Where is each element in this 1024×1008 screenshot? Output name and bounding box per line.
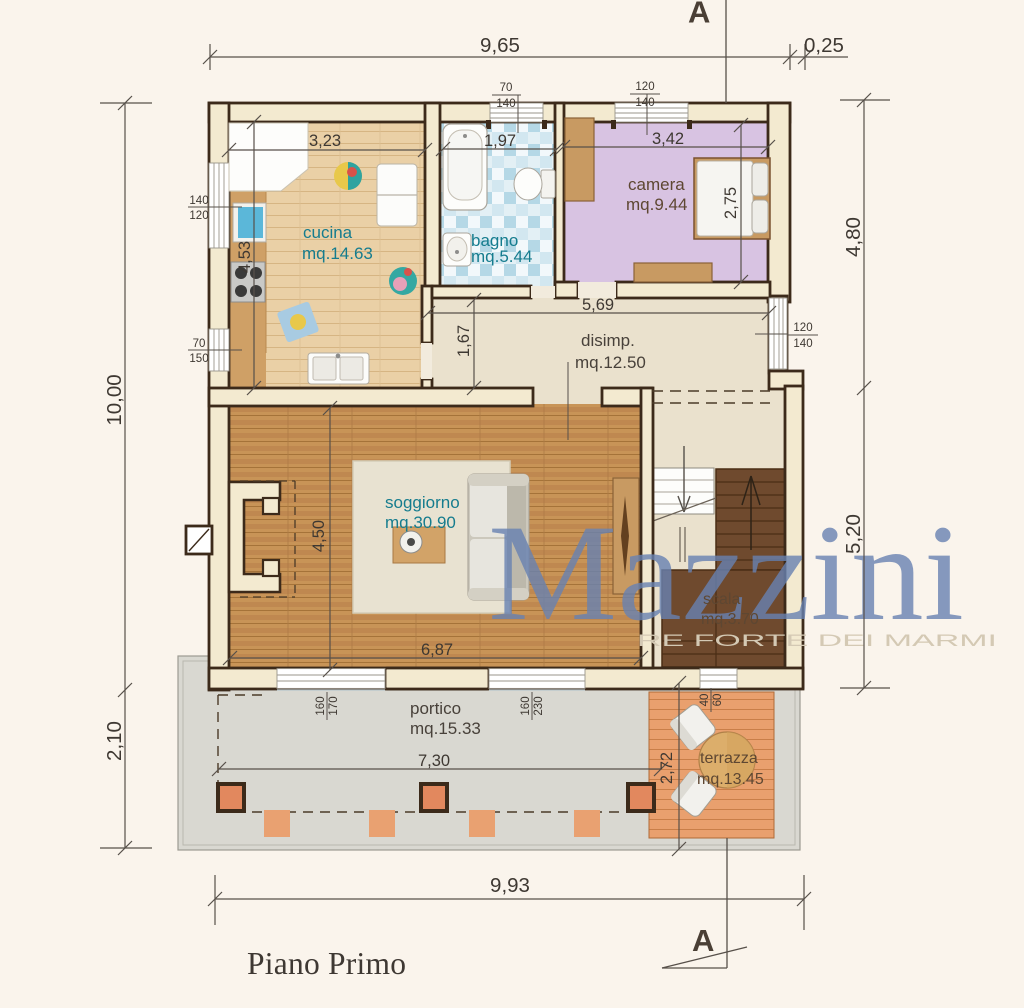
svg-text:120: 120	[189, 210, 208, 222]
svg-text:4,53: 4,53	[236, 241, 254, 273]
svg-text:160: 160	[315, 696, 327, 715]
svg-text:5,20: 5,20	[842, 514, 865, 554]
svg-text:140: 140	[189, 195, 208, 207]
svg-text:170: 170	[328, 696, 340, 715]
svg-text:mq.5.44: mq.5.44	[471, 247, 532, 266]
svg-text:mq.3.70: mq.3.70	[701, 611, 759, 628]
svg-text:3,23: 3,23	[309, 132, 341, 150]
svg-text:10,00: 10,00	[103, 374, 126, 425]
svg-text:terrazza: terrazza	[700, 750, 758, 767]
svg-text:4,50: 4,50	[310, 520, 328, 552]
svg-text:mq.13.45: mq.13.45	[697, 771, 764, 788]
svg-text:A: A	[692, 923, 714, 958]
svg-text:mq.12.50: mq.12.50	[575, 353, 646, 372]
svg-text:120: 120	[793, 322, 812, 334]
svg-text:6,87: 6,87	[421, 641, 453, 659]
svg-text:60: 60	[712, 694, 724, 707]
svg-text:40: 40	[699, 694, 711, 707]
svg-text:150: 150	[189, 353, 208, 365]
svg-text:camera: camera	[628, 175, 685, 194]
svg-text:5,69: 5,69	[582, 296, 614, 314]
svg-text:4,80: 4,80	[842, 217, 865, 257]
svg-text:2,10: 2,10	[103, 721, 126, 761]
svg-text:140: 140	[793, 338, 812, 350]
svg-text:0,25: 0,25	[804, 34, 844, 57]
svg-text:cucina: cucina	[303, 223, 353, 242]
svg-text:70: 70	[193, 338, 206, 350]
svg-text:disimp.: disimp.	[581, 331, 635, 350]
svg-text:1,67: 1,67	[455, 325, 473, 357]
svg-text:230: 230	[533, 696, 545, 715]
svg-text:120: 120	[635, 81, 654, 93]
svg-text:2,72: 2,72	[658, 752, 676, 784]
svg-text:140: 140	[635, 97, 654, 109]
svg-text:mq.30.90: mq.30.90	[385, 513, 456, 532]
svg-text:70: 70	[500, 82, 513, 94]
svg-text:RE FORTE DEI MARMI: RE FORTE DEI MARMI	[637, 631, 997, 650]
svg-text:2,75: 2,75	[722, 187, 740, 219]
svg-text:9,93: 9,93	[490, 874, 530, 897]
svg-text:mq.9.44: mq.9.44	[626, 195, 687, 214]
svg-text:A: A	[688, 0, 710, 30]
svg-text:7,30: 7,30	[418, 752, 450, 770]
svg-text:mq.15.33: mq.15.33	[410, 719, 481, 738]
svg-text:1,97: 1,97	[484, 132, 516, 150]
svg-text:scala: scala	[703, 591, 740, 608]
svg-text:portico: portico	[410, 699, 461, 718]
svg-text:3,42: 3,42	[652, 130, 684, 148]
svg-text:Piano Primo: Piano Primo	[247, 946, 406, 981]
svg-text:mq.14.63: mq.14.63	[302, 244, 373, 263]
svg-text:9,65: 9,65	[480, 34, 520, 57]
svg-text:soggiorno: soggiorno	[385, 493, 460, 512]
svg-text:140: 140	[496, 98, 515, 110]
svg-text:160: 160	[520, 696, 532, 715]
